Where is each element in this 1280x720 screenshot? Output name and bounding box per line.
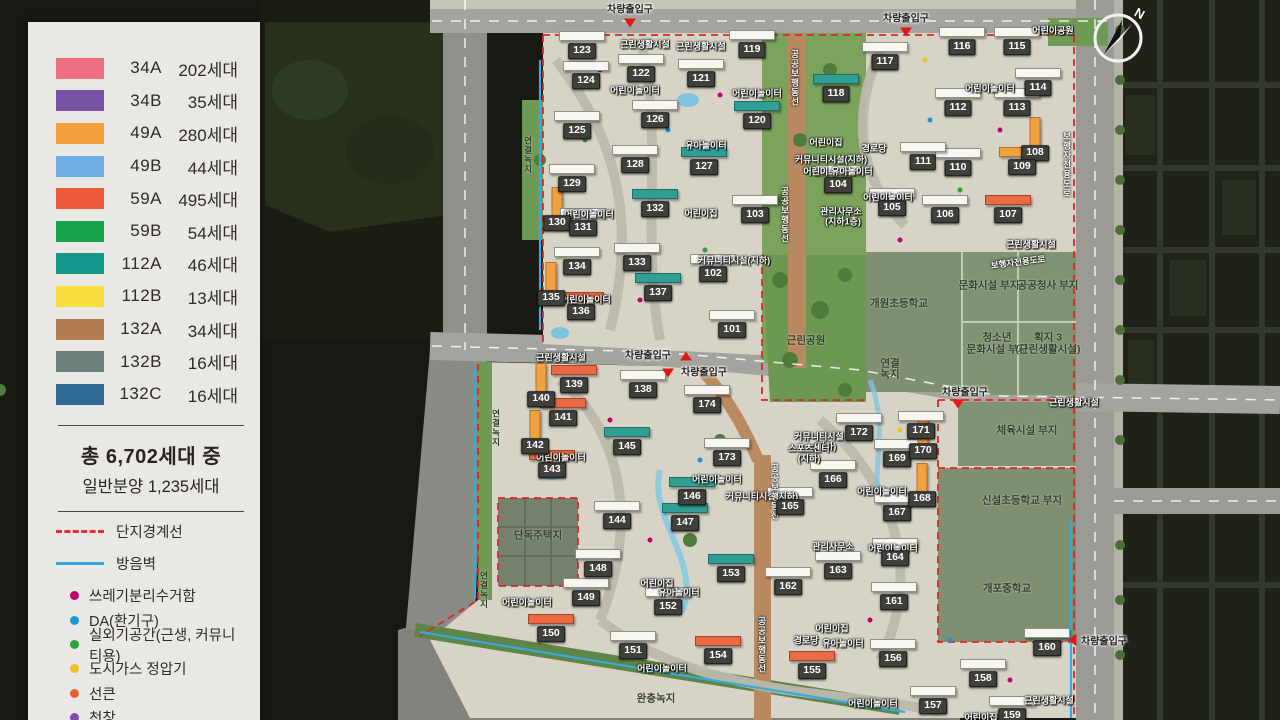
entrance-arrow-icon [680, 352, 692, 361]
building-number-label: 127 [690, 159, 718, 175]
building-footprint [922, 195, 968, 205]
site-plan-page: 근린생활시설근린생활시설근린생활시설근린생활시설근린생활시설근린생활시설어린이놀… [0, 0, 1280, 720]
map-label: 경로당 [794, 634, 819, 647]
unit-code: 49A [118, 123, 162, 143]
wall-line-icon [56, 562, 104, 565]
building-number-label: 106 [931, 207, 959, 223]
map-label: 근린생활시설 [676, 40, 726, 53]
building-footprint [620, 370, 666, 380]
unit-count: 54세대 [162, 219, 238, 244]
building-number-label: 114 [1025, 80, 1052, 96]
legend-unit-row: 59A495세대 [56, 182, 246, 215]
building-footprint [704, 438, 750, 448]
map-label: 개원초등학교 [870, 296, 928, 311]
total-households: 총 6,702세대 중 [56, 440, 246, 469]
map-label: 유아놀이터 [822, 637, 863, 650]
building-number-label: 115 [1004, 39, 1031, 55]
building-footprint [836, 413, 882, 423]
general-sale-households: 일반분양 1,235세대 [56, 473, 246, 497]
building-number-label: 122 [627, 66, 655, 82]
building-number-label: 166 [819, 472, 847, 488]
unit-count: 13세대 [162, 284, 238, 309]
building-number-label: 174 [693, 397, 721, 413]
building-footprint [695, 636, 741, 646]
building-footprint [551, 365, 597, 375]
building-number-label: 151 [619, 643, 647, 659]
legend-panel: 34A202세대34B35세대49A280세대49B44세대59A495세대59… [28, 22, 260, 720]
unit-color-swatch [56, 253, 104, 274]
building-footprint [618, 54, 664, 64]
unit-color-swatch [56, 384, 104, 405]
building-footprint [528, 614, 574, 624]
marker-legend: 쓰레기분리수거함DA(환기구)실외기공간(근생, 커뮤니티용)도시가스 정압기선… [56, 584, 246, 720]
map-label: (지하) [798, 452, 821, 465]
map-label: 근린생활시설 [1006, 238, 1056, 251]
legend-unit-row: 49B44세대 [56, 150, 246, 183]
building-number-label: 121 [687, 71, 715, 87]
building-number-label: 173 [713, 450, 741, 466]
building-number-label: 160 [1033, 640, 1061, 656]
map-label: 어린이집 [809, 136, 842, 149]
unit-count: 16세대 [162, 382, 238, 407]
building-number-label: 133 [623, 255, 651, 271]
line-legend: 단지경계선방음벽 [56, 520, 246, 576]
building-footprint [789, 651, 835, 661]
map-label: 개포중학교 [983, 581, 1031, 596]
building-footprint [678, 59, 724, 69]
building-number-label: 157 [919, 698, 947, 714]
unit-count: 16세대 [162, 349, 238, 374]
map-label: 커뮤니티시설(지하) [698, 254, 770, 267]
building-footprint [708, 554, 754, 564]
building-number-label: 116 [949, 39, 976, 55]
building-number-label: 167 [883, 505, 911, 521]
building-footprint [594, 501, 640, 511]
map-label: 공공보행동선 [779, 187, 791, 244]
unit-color-swatch [56, 286, 104, 307]
unit-code: 59B [118, 221, 162, 241]
legend-unit-row: 59B54세대 [56, 215, 246, 248]
building-number-label: 136 [567, 304, 595, 320]
building-number-label: 132 [641, 201, 669, 217]
building-number-label: 158 [969, 671, 997, 687]
building-footprint [898, 411, 944, 421]
building-number-label: 135 [537, 290, 565, 306]
building-number-label: 163 [824, 563, 852, 579]
map-label: 어린이놀이터 [965, 82, 1015, 95]
building-number-label: 145 [613, 439, 641, 455]
unit-color-swatch [56, 156, 104, 177]
building-number-label: 118 [823, 86, 850, 102]
building-footprint [604, 427, 650, 437]
unit-color-swatch [56, 90, 104, 111]
building-number-label: 152 [654, 599, 682, 615]
building-footprint [732, 195, 778, 205]
building-number-label: 155 [798, 663, 826, 679]
building-footprint [871, 582, 917, 592]
building-number-label: 120 [743, 113, 771, 129]
unit-color-swatch [56, 123, 104, 144]
building-footprint [684, 385, 730, 395]
entrance-arrow-icon [952, 400, 964, 409]
map-label: 공공보행동선 [789, 50, 801, 107]
boundary-line-icon [56, 530, 104, 533]
building-footprint [612, 145, 658, 155]
legend-unit-row: 132B16세대 [56, 345, 246, 378]
map-label: 어린이놀이터 [732, 87, 782, 100]
building-number-label: 150 [537, 626, 565, 642]
building-number-label: 164 [881, 550, 909, 566]
dot-marker-icon [70, 640, 79, 649]
map-label: 어린이집 [684, 207, 717, 220]
vehicle-entrance-label: 차량출입구 [942, 384, 988, 399]
building-footprint [632, 100, 678, 110]
map-label: 신설초등학교 부지 [982, 493, 1062, 508]
legend-line-row: 방음벽 [56, 552, 246, 576]
building-number-label: 142 [521, 438, 549, 454]
vehicle-entrance-label: 차량출입구 [883, 10, 929, 25]
building-number-label: 137 [644, 285, 672, 301]
building-footprint [815, 551, 861, 561]
unit-code: 112B [118, 286, 162, 306]
map-label: 근린생활시설 [1024, 694, 1074, 707]
legend-marker-label: 선큰 [89, 683, 116, 704]
building-number-label: 103 [741, 207, 769, 223]
unit-code: 34A [118, 58, 162, 78]
map-label: 어린이놀이터 [502, 596, 552, 609]
map-label: 완충녹지 [637, 691, 676, 706]
building-number-label: 109 [1008, 159, 1036, 175]
map-label: 문화시설 부지 [959, 278, 1020, 293]
legend-line-label: 방음벽 [116, 553, 156, 574]
map-label: 어린이놀이터 [637, 662, 687, 675]
unit-color-swatch [56, 221, 104, 242]
unit-count: 35세대 [162, 88, 238, 113]
building-number-label: 159 [998, 708, 1026, 720]
building-number-label: 129 [558, 176, 586, 192]
map-label: 근린생활시설 [1049, 396, 1099, 409]
map-label: 어린이집 [640, 577, 673, 590]
building-number-label: 111 [910, 154, 936, 170]
map-label: 어린이놀이터 [610, 84, 660, 97]
legend-unit-row: 112A46세대 [56, 248, 246, 281]
map-label: 근린생활시설 [620, 38, 670, 51]
map-label: 어린이놀이터 [848, 697, 898, 710]
unit-count: 280세대 [162, 121, 238, 146]
building-footprint [554, 111, 600, 121]
vehicle-entrance-label: 차량출입구 [681, 364, 727, 379]
map-label: 근린생활시설 [536, 351, 586, 364]
legend-marker-row: 천창 [56, 705, 246, 720]
building-number-label: 156 [879, 651, 907, 667]
building-footprint [563, 578, 609, 588]
legend-line-symbol [56, 530, 104, 533]
building-footprint [1015, 68, 1061, 78]
dot-marker-icon [70, 616, 79, 625]
map-label: 보행자전용도로 [1061, 132, 1073, 199]
map-label: 공공보행동선 [756, 617, 768, 674]
map-label: 어린이집 [815, 622, 848, 635]
vehicle-entrance-label: 차량출입구 [607, 1, 653, 16]
unit-code: 49B [118, 156, 162, 176]
legend-unit-row: 49A280세대 [56, 117, 246, 150]
unit-color-swatch [56, 351, 104, 372]
map-label: 어린이집 [964, 711, 997, 720]
entrance-arrow-icon [624, 19, 636, 28]
unit-count: 46세대 [162, 251, 238, 276]
divider [58, 511, 244, 512]
map-label: 어린이놀이터 [857, 485, 907, 498]
building-number-label: 130 [543, 215, 571, 231]
building-number-label: 110 [945, 160, 972, 176]
building-number-label: 161 [880, 594, 908, 610]
unit-type-legend: 34A202세대34B35세대49A280세대49B44세대59A495세대59… [56, 52, 246, 411]
map-label: 연결녹지 [490, 409, 502, 447]
map-label: 공공청사 부지 [1018, 278, 1079, 293]
legend-unit-row: 34B35세대 [56, 85, 246, 118]
map-label: 연결녹지 [522, 136, 534, 174]
building-footprint [610, 631, 656, 641]
building-footprint [939, 27, 985, 37]
building-footprint [563, 61, 609, 71]
vehicle-entrance-label: 차량출입구 [1081, 633, 1127, 648]
map-label: 어린이놀이터 [564, 208, 614, 221]
building-number-label: 107 [994, 207, 1022, 223]
building-number-label: 113 [1004, 100, 1031, 116]
building-number-label: 117 [872, 54, 899, 70]
building-number-label: 144 [603, 513, 631, 529]
unit-count: 44세대 [162, 154, 238, 179]
building-footprint [614, 243, 660, 253]
building-number-label: 125 [563, 123, 591, 139]
unit-count: 202세대 [162, 56, 238, 81]
map-label: 어린이놀이터 [692, 473, 742, 486]
building-footprint [862, 42, 908, 52]
building-footprint [632, 189, 678, 199]
building-footprint [559, 31, 605, 41]
map-label: (지하1층) [825, 215, 861, 228]
building-number-label: 165 [776, 499, 804, 515]
building-number-label: 131 [569, 220, 597, 236]
building-number-label: 162 [774, 579, 802, 595]
building-number-label: 101 [718, 322, 746, 338]
dot-marker-icon [70, 689, 79, 698]
building-footprint [1024, 628, 1070, 638]
building-number-label: 126 [641, 112, 669, 128]
building-footprint [910, 686, 956, 696]
legend-unit-row: 132A34세대 [56, 313, 246, 346]
map-label: 체육시설 부지 [997, 423, 1058, 438]
legend-marker-row: 실외기공간(근생, 커뮤니티용) [56, 632, 246, 656]
building-number-label: 146 [678, 489, 706, 505]
building-footprint [635, 273, 681, 283]
unit-color-swatch [56, 188, 104, 209]
building-number-label: 172 [845, 425, 873, 441]
building-number-label: 139 [560, 377, 588, 393]
map-label: (근린생활시설) [1016, 342, 1081, 357]
unit-code: 34B [118, 91, 162, 111]
building-number-label: 105 [878, 200, 906, 216]
legend-unit-row: 34A202세대 [56, 52, 246, 85]
building-number-label: 143 [538, 462, 566, 478]
map-label: 유아놀이터 [685, 139, 726, 152]
building-number-label: 102 [699, 266, 727, 282]
unit-code: 112A [118, 254, 162, 274]
building-footprint [765, 567, 811, 577]
legend-unit-row: 112B13세대 [56, 280, 246, 313]
building-number-label: 124 [572, 73, 600, 89]
building-number-label: 171 [907, 423, 935, 439]
map-label: 어린이·유아놀이터 [803, 165, 872, 178]
building-footprint [549, 164, 595, 174]
legend-marker-label: 천창 [89, 707, 116, 720]
entrance-arrow-icon [900, 28, 912, 37]
map-label: 연결녹지 [478, 571, 490, 609]
map-label: 근린공원 [787, 333, 826, 348]
building-footprint [870, 639, 916, 649]
map-label: 어린이공원 [1032, 24, 1073, 37]
building-number-label: 147 [671, 515, 699, 531]
building-number-label: 148 [584, 561, 612, 577]
legend-marker-row: 선큰 [56, 681, 246, 705]
building-footprint [709, 310, 755, 320]
building-number-label: 170 [909, 443, 937, 459]
building-number-label: 140 [527, 391, 555, 407]
unit-color-swatch [56, 319, 104, 340]
building-number-label: 154 [704, 648, 732, 664]
map-label: 단독주택지 [514, 528, 562, 543]
legend-line-row: 단지경계선 [56, 520, 246, 544]
map-label: 관리사무소 [812, 540, 853, 553]
building-number-label: 169 [883, 451, 911, 467]
building-footprint [729, 30, 775, 40]
legend-marker-label: 쓰레기분리수거함 [89, 585, 196, 606]
building-number-label: 149 [572, 590, 600, 606]
building-number-label: 134 [563, 259, 591, 275]
building-number-label: 168 [908, 491, 936, 507]
unit-count: 34세대 [162, 317, 238, 342]
building-number-label: 119 [739, 42, 766, 58]
entrance-arrow-icon [662, 369, 674, 378]
totals: 총 6,702세대 중 일반분양 1,235세대 [56, 440, 246, 497]
unit-code: 132A [118, 319, 162, 339]
building-number-label: 153 [717, 566, 745, 582]
building-footprint [900, 142, 946, 152]
building-number-label: 123 [568, 43, 596, 59]
divider [58, 425, 244, 426]
unit-code: 132C [118, 384, 162, 404]
unit-color-swatch [56, 58, 104, 79]
entrance-arrow-icon [1068, 634, 1077, 646]
building-number-label: 141 [549, 410, 577, 426]
building-footprint [575, 549, 621, 559]
building-number-label: 138 [629, 382, 657, 398]
dot-marker-icon [70, 664, 79, 673]
map-label: 보행자전용도로 [990, 253, 1046, 272]
unit-code: 132B [118, 352, 162, 372]
building-footprint [960, 659, 1006, 669]
legend-marker-row: 쓰레기분리수거함 [56, 584, 246, 608]
legend-marker-label: 도시가스 정압기 [89, 658, 186, 679]
building-footprint [813, 74, 859, 84]
building-footprint [734, 101, 780, 111]
dot-marker-icon [70, 713, 79, 720]
building-footprint [554, 247, 600, 257]
building-number-label: 104 [824, 177, 852, 193]
legend-unit-row: 132C16세대 [56, 378, 246, 411]
legend-line-symbol [56, 562, 104, 565]
building-footprint [985, 195, 1031, 205]
building-number-label: 128 [621, 157, 649, 173]
vehicle-entrance-label: 차량출입구 [625, 347, 671, 362]
compass-north: N [1090, 10, 1146, 66]
dot-marker-icon [70, 591, 79, 600]
unit-count: 495세대 [162, 186, 238, 211]
building-number-label: 112 [945, 100, 972, 116]
map-label: 녹지 [880, 367, 899, 382]
legend-line-label: 단지경계선 [116, 521, 183, 542]
unit-code: 59A [118, 189, 162, 209]
